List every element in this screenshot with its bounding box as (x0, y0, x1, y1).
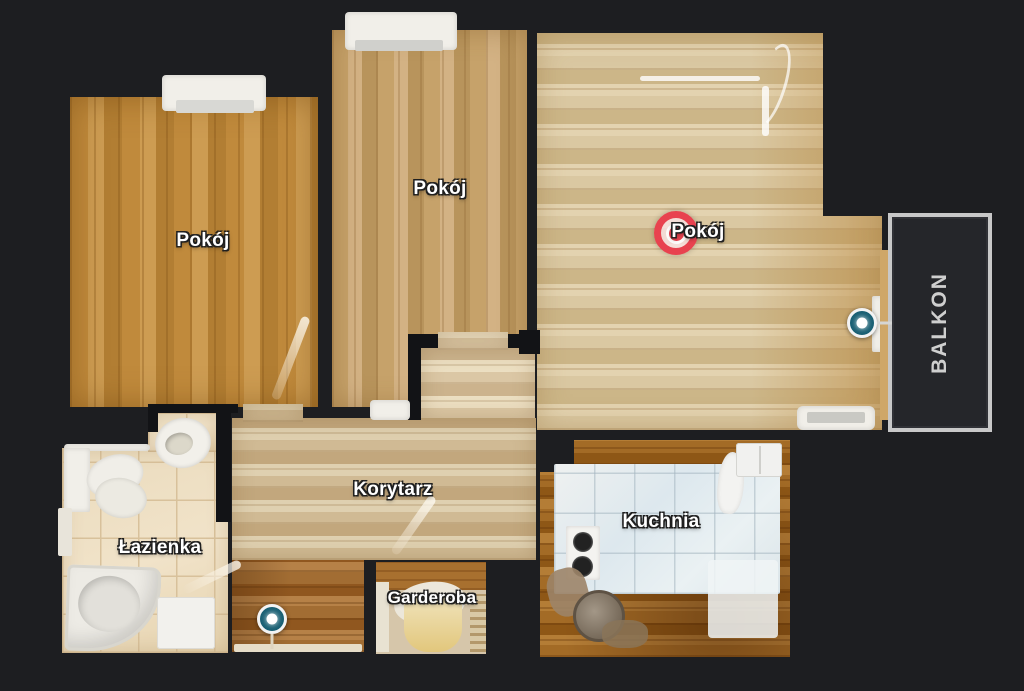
fridge-divider (759, 446, 761, 474)
doorway-threshold (438, 332, 508, 350)
corridor-floor-entry-leg[interactable] (232, 560, 364, 652)
floorplan-canvas[interactable]: BALKON Pokój Pokój Pokój Korytarz Łazien… (0, 0, 1024, 691)
balcony-area: BALKON (888, 213, 992, 432)
kitchen-chair (602, 620, 648, 648)
doorway-threshold-white (370, 400, 410, 420)
window-sill (176, 100, 254, 113)
waypoint-balcony-door[interactable] (847, 308, 877, 338)
wall-segment (216, 404, 231, 522)
waypoint-stem (877, 322, 892, 325)
room-label-kuchnia: Kuchnia (622, 511, 699, 533)
wall-segment (519, 330, 540, 354)
bathroom-wall-fixture (58, 508, 72, 556)
kitchen-fridge (736, 443, 782, 477)
waypoint-stem (271, 634, 274, 649)
toilet-bowl (163, 430, 195, 457)
room-label-lazienka: Łazienka (119, 537, 202, 559)
room-label-garderoba: Garderoba (388, 588, 477, 608)
kitchen-counter-white (708, 560, 778, 638)
room-floor-garderoba[interactable] (376, 562, 486, 654)
wall-segment (148, 404, 158, 432)
washing-machine (157, 597, 215, 649)
cable-mark (762, 86, 769, 136)
window-sill (355, 40, 443, 51)
room-floor-kuchnia[interactable] (540, 440, 790, 657)
bathtub-basin (77, 575, 141, 633)
stove-burner (573, 532, 593, 552)
waypoint-corridor[interactable] (257, 604, 287, 634)
radiator (797, 406, 875, 430)
doorway-threshold (243, 404, 303, 422)
waypoint-dot (267, 614, 278, 625)
room-label-pokoj-top-left: Pokój (176, 230, 229, 252)
room-floor-pokoj-top-left[interactable] (70, 97, 318, 407)
floor-seam-mark (640, 76, 760, 81)
room-label-pokoj-right: Pokój (671, 221, 724, 243)
entry-door-sill (234, 644, 362, 652)
radiator-grill (807, 412, 865, 423)
room-label-korytarz: Korytarz (353, 479, 432, 501)
room-label-pokoj-top-middle: Pokój (413, 178, 466, 200)
corridor-floor-upper-arm[interactable] (421, 348, 535, 420)
waypoint-dot (857, 318, 868, 329)
balcony-label: BALKON (928, 272, 952, 374)
